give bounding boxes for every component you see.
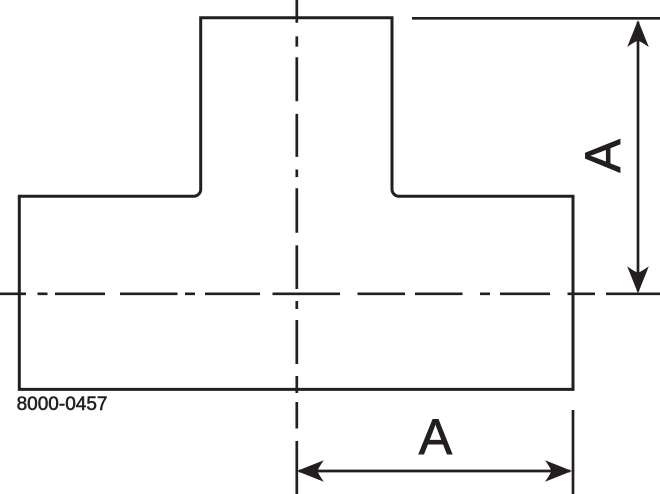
svg-text:8000-0457: 8000-0457: [17, 394, 108, 415]
svg-text:A: A: [419, 409, 453, 465]
svg-text:A: A: [575, 138, 631, 172]
